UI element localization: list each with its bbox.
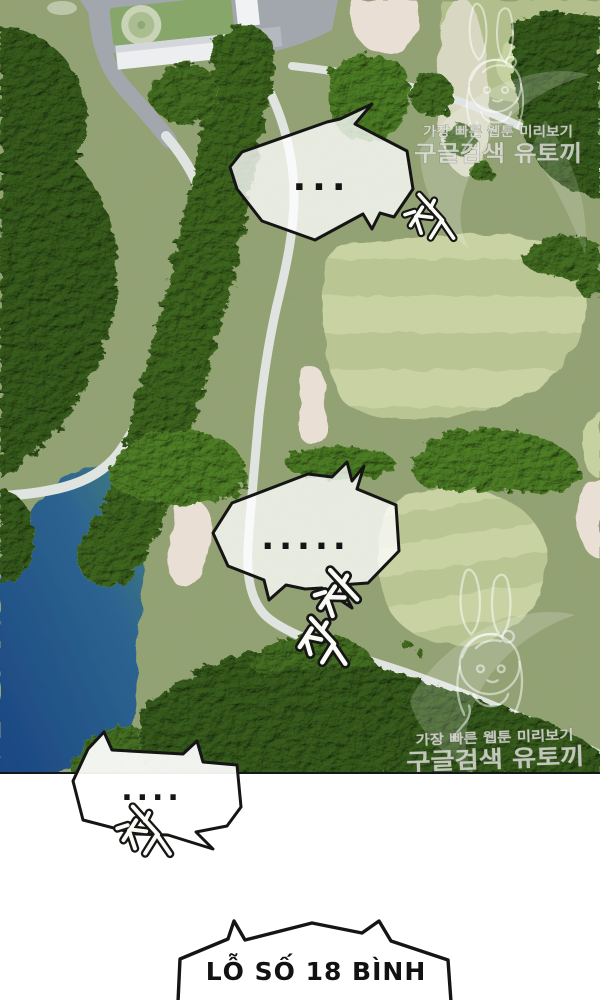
speech-bubble-middle-text: ..... — [261, 518, 351, 558]
watermark-bottom-text: 가장 빠른 웹툰 미리보기 구글검색 유토끼 — [405, 726, 584, 776]
dialogue-bubble-bottom: LỖ SỐ 18 BÌNH — [178, 921, 451, 1000]
tree — [416, 649, 424, 657]
clubhouse-lawn-ellipse — [47, 1, 77, 15]
dialogue-text: LỖ SỐ 18 BÌNH — [206, 953, 427, 986]
webtoon-page: 가장 빠른 웹툰 미리보기 구글검색 유토끼 가장 빠른 웹툰 미리보기 구글검… — [0, 0, 600, 1000]
tree — [410, 73, 454, 117]
golf-course-aerial-photo: 가장 빠른 웹툰 미리보기 구글검색 유토끼 가장 빠른 웹툰 미리보기 구글검… — [0, 0, 600, 780]
tree — [403, 641, 413, 651]
clubhouse-wall — [234, 0, 259, 27]
speech-bubble-top-text: ... — [292, 158, 351, 199]
watermark-line1: 가장 빠른 웹툰 미리보기 — [423, 124, 573, 140]
speech-bubble-lower-text: .... — [121, 773, 183, 808]
webtoon-panel: 가장 빠른 웹툰 미리보기 구글검색 유토끼 가장 빠른 웹툰 미리보기 구글검… — [0, 0, 600, 1000]
watermark-line2: 구글검색 유토끼 — [414, 142, 582, 167]
